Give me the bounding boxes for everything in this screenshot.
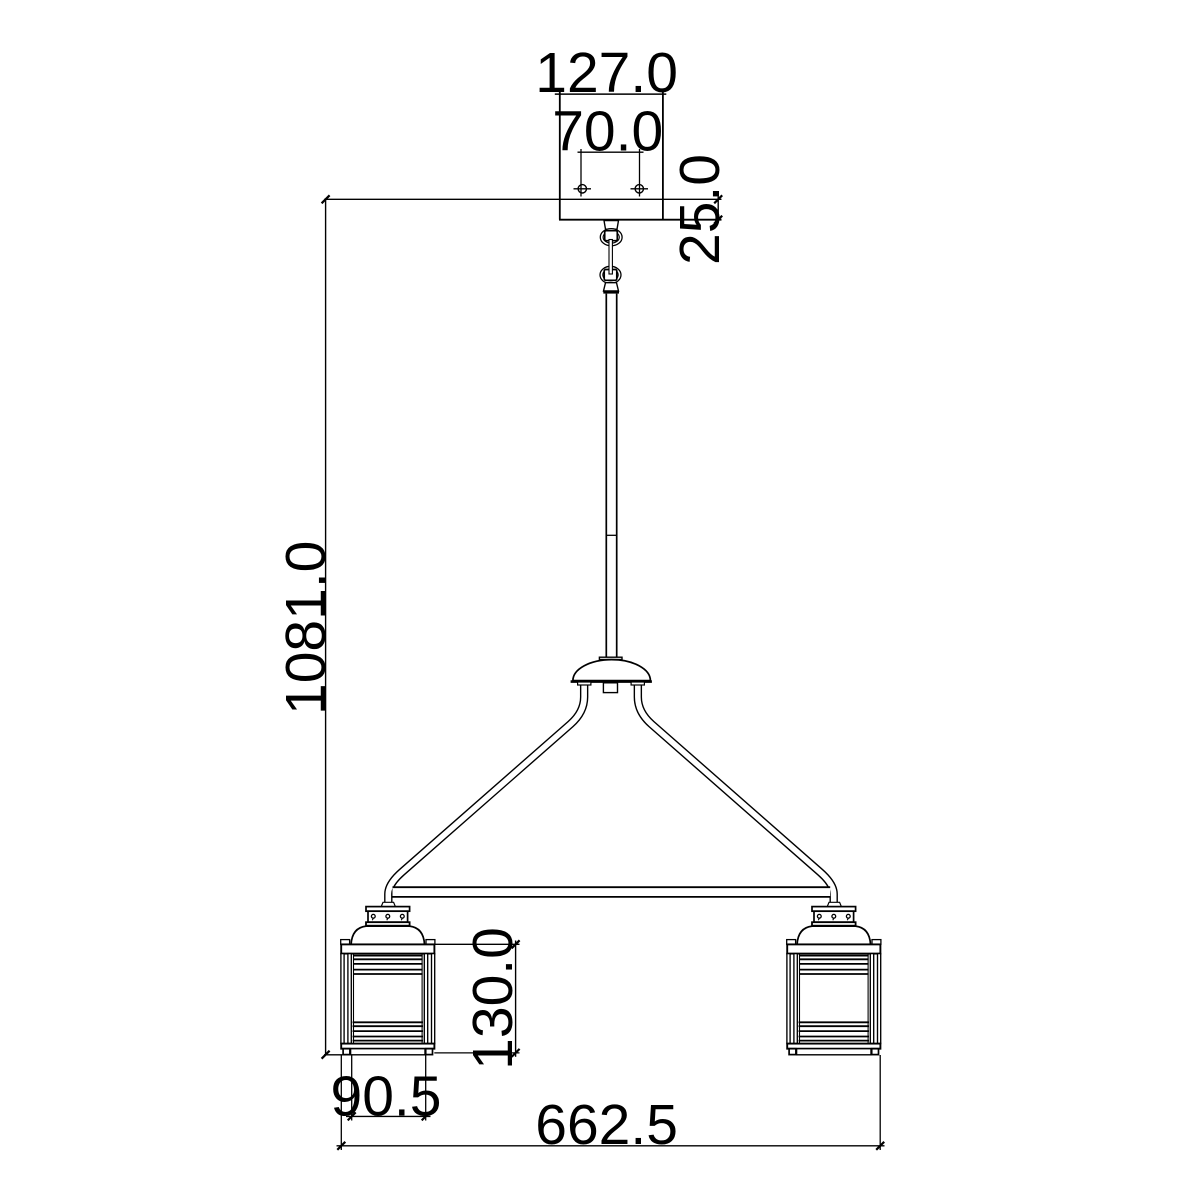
- svg-text:25.0: 25.0: [668, 154, 732, 265]
- svg-text:662.5: 662.5: [535, 1093, 678, 1157]
- svg-text:90.5: 90.5: [331, 1065, 442, 1129]
- svg-text:1081.0: 1081.0: [274, 541, 338, 715]
- svg-text:70.0: 70.0: [552, 100, 663, 164]
- svg-text:127.0: 127.0: [535, 41, 678, 105]
